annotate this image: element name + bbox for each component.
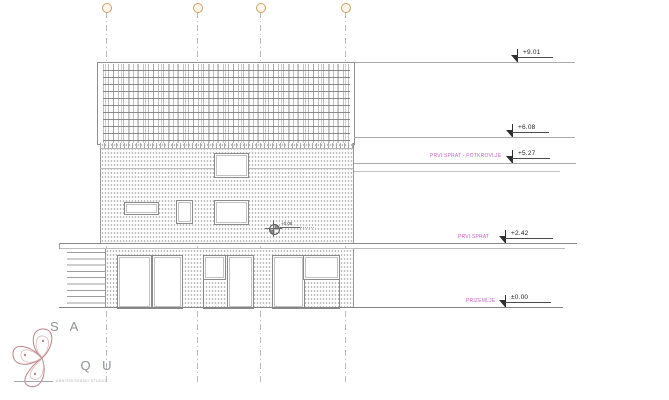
- window-middle: [214, 200, 249, 225]
- logo-wordmark: S A Q U R A: [50, 317, 116, 400]
- glass-door-2: [152, 255, 183, 309]
- spot-level-icon: [269, 224, 280, 235]
- level-line-901: [354, 62, 575, 63]
- glass-door-4: [272, 255, 305, 309]
- spot-level-cross-h: [265, 228, 282, 229]
- level-label-000: PRIZEMLJE: [466, 298, 495, 304]
- spot-level-value: +0.08: [281, 221, 292, 226]
- level-tick-901: [517, 49, 518, 62]
- spot-level-leader: [300, 227, 314, 228]
- glass-door-1: [117, 255, 152, 309]
- level-value-901: +9.01: [523, 49, 540, 56]
- level-underline-608: [512, 132, 549, 133]
- level-underline-000: [505, 302, 551, 303]
- level-line-527-lower: [354, 171, 560, 172]
- roof-tiled: [97, 62, 355, 145]
- level-label-527: PRVI SPRAT - POTKROVLJE: [430, 153, 501, 159]
- logo-tagline: ARHITEKTONSKI STUDIO: [56, 379, 106, 383]
- roof-tile-pattern: [103, 64, 350, 143]
- window-small: [176, 200, 193, 224]
- exterior-stairs: [67, 252, 105, 308]
- logo-line-2: Q U: [80, 358, 115, 373]
- logo-line-1: S A: [50, 319, 82, 334]
- window-right: [303, 255, 340, 280]
- glass-door-3: [227, 255, 254, 309]
- spot-level-underline: [280, 227, 300, 228]
- level-value-608: +6.08: [518, 124, 535, 131]
- level-line-608: [354, 137, 575, 138]
- grid-axis-bubble-2: [193, 3, 203, 13]
- level-value-527: +5.27: [518, 150, 535, 157]
- level-tick-000: [505, 295, 506, 307]
- level-value-242: +2.42: [511, 230, 528, 237]
- logo-divider: [14, 381, 53, 382]
- grid-axis-bubble-1: [102, 3, 112, 13]
- canopy-slab-top-line: [59, 243, 577, 244]
- level-label-242: PRVI SPRAT: [458, 234, 489, 240]
- window-letterbox: [124, 202, 159, 215]
- level-underline-242: [505, 238, 553, 239]
- level-underline-527: [512, 158, 550, 159]
- canopy-left-edge: [59, 243, 60, 249]
- roof-eaves-edge: [100, 143, 353, 149]
- level-underline-901: [517, 57, 553, 58]
- grid-axis-bubble-3: [256, 3, 266, 13]
- elevation-drawing-sheet: +0.08 +9.01 +6.08 +5.27 PRVI SPRAT - POT…: [0, 0, 669, 400]
- level-tick-527: [512, 150, 513, 163]
- grid-axis-bubble-4: [341, 3, 351, 13]
- window-attic: [214, 153, 249, 178]
- level-tick-608: [512, 124, 513, 137]
- level-line-527: [354, 163, 576, 164]
- ground-line: [59, 307, 563, 308]
- level-value-000: ±0.00: [511, 294, 528, 301]
- window-over-panel: [203, 255, 226, 280]
- level-tick-242: [505, 230, 506, 243]
